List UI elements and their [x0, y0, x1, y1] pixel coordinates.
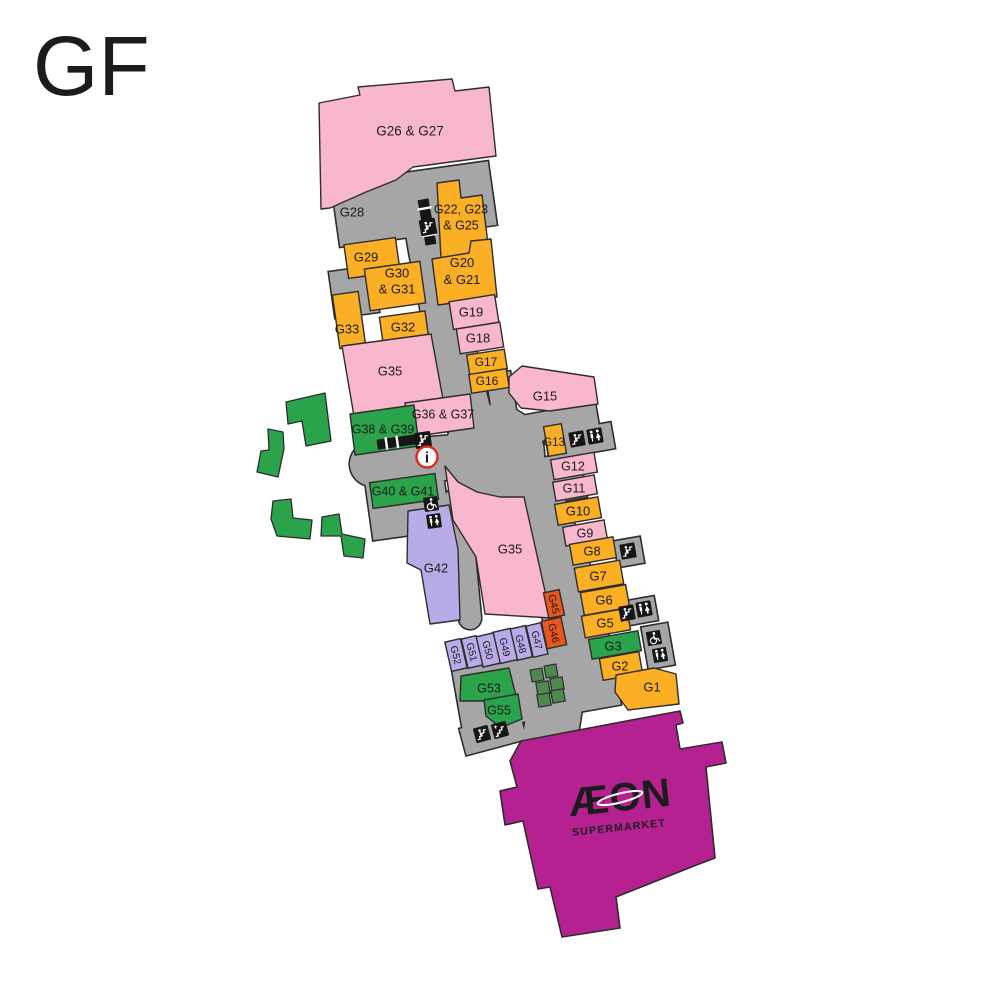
- room-label-g15: G15: [533, 389, 558, 404]
- information-icon-glyph: i: [425, 450, 429, 467]
- room-label-g13: G13: [543, 437, 565, 449]
- room-label-g28: G28: [340, 205, 365, 220]
- room-label-g12: G12: [561, 459, 585, 473]
- room-label-g7: G7: [589, 569, 606, 584]
- room-label-g35_lower: G35: [498, 542, 523, 557]
- room-label-g38_39: G38 & G39: [352, 422, 415, 436]
- accessible-toilet-icon: [646, 630, 663, 647]
- room-label-g22_25: G22, G23: [434, 202, 488, 216]
- planter-2: [544, 664, 558, 678]
- toilets-icon: [635, 600, 653, 618]
- room-label-g1: G1: [643, 680, 660, 695]
- room-label-g35_upper: G35: [378, 364, 403, 379]
- room-label-g8: G8: [583, 544, 600, 559]
- room-label-g29: G29: [354, 250, 379, 265]
- escalator-icon: [568, 430, 586, 448]
- room-label-g18: G18: [466, 331, 491, 346]
- room-label-g33: G33: [335, 322, 360, 337]
- landscape-green-2: [257, 429, 284, 477]
- escalator-icon: [619, 542, 637, 560]
- room-label-g6: G6: [595, 593, 612, 608]
- room-label-g19: G19: [459, 305, 484, 320]
- room-label-g26_27: G26 & G27: [376, 124, 444, 139]
- room-label-g53: G53: [477, 681, 501, 695]
- room-label-g32: G32: [391, 320, 416, 335]
- room-label-g40_41: G40 & G41: [372, 484, 435, 498]
- escalator-icon: [618, 604, 636, 622]
- toilets-icon: [652, 647, 669, 664]
- planter-6: [551, 689, 565, 703]
- room-label-g30_31: G30: [385, 266, 410, 281]
- floorplan: iG26 & G27G28G22, G23& G25G29G30& G31G32…: [0, 0, 1000, 1000]
- planter-5: [537, 693, 551, 707]
- landscape-green-3: [271, 499, 312, 539]
- room-label-g2: G2: [612, 659, 629, 673]
- room-label-g10: G10: [566, 504, 591, 519]
- toilets-icon: [586, 427, 604, 445]
- room-label-g20_21: & G21: [444, 272, 481, 287]
- room-label-g16: G16: [476, 374, 499, 388]
- room-label-g22_25: & G25: [443, 218, 478, 232]
- escalator-icon: [419, 218, 438, 237]
- toilets-icon: [426, 513, 442, 529]
- floor-title: GF: [33, 19, 150, 113]
- room-label-g5: G5: [596, 616, 613, 631]
- room-label-g17: G17: [475, 355, 498, 369]
- room-label-g42: G42: [424, 561, 449, 576]
- room-label-g3: G3: [604, 639, 621, 654]
- room-label-g36_37: G36 & G37: [412, 407, 475, 421]
- landscape-green-4: [321, 514, 365, 558]
- room-label-g9: G9: [577, 526, 594, 540]
- room-label-g11: G11: [563, 481, 586, 495]
- room-label-g55: G55: [487, 703, 511, 717]
- landscape-green-1: [286, 393, 331, 446]
- planter-1: [530, 668, 544, 682]
- room-label-g30_31: & G31: [379, 282, 416, 297]
- room-label-g20_21: G20: [450, 255, 475, 270]
- information-icon: i: [417, 447, 438, 468]
- floorplan-svg: iG26 & G27G28G22, G23& G25G29G30& G31G32…: [0, 0, 1000, 1000]
